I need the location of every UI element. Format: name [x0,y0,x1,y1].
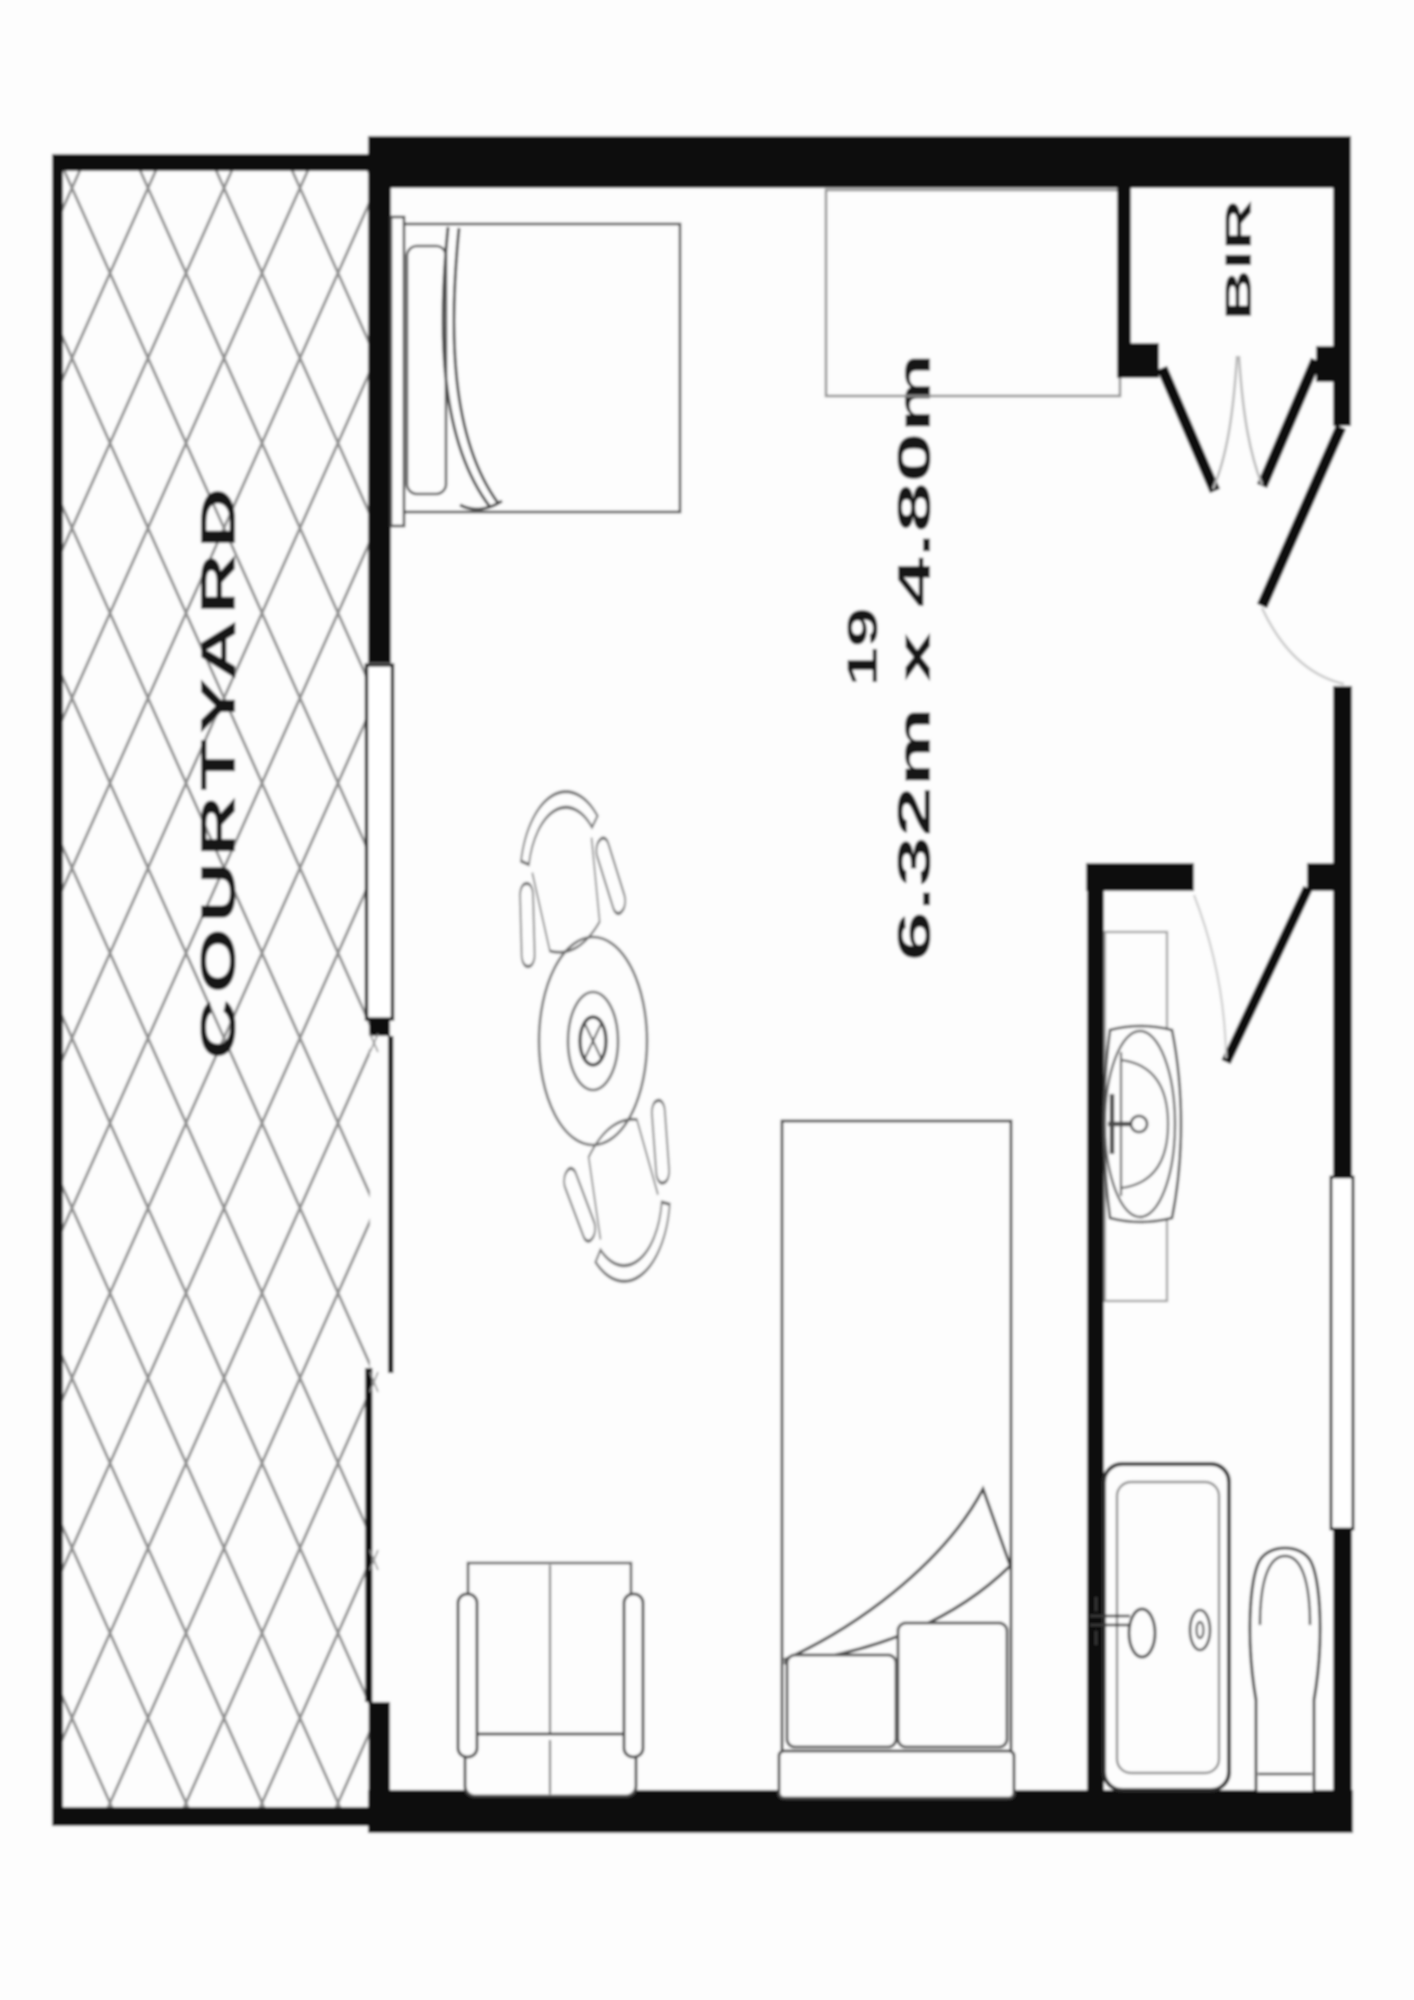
svg-text:6.32m x 4.80m: 6.32m x 4.80m [889,353,941,961]
svg-text:COURTYARD: COURTYARD [191,482,246,1059]
svg-text:19: 19 [839,608,887,687]
svg-text:BIR: BIR [1217,199,1258,320]
